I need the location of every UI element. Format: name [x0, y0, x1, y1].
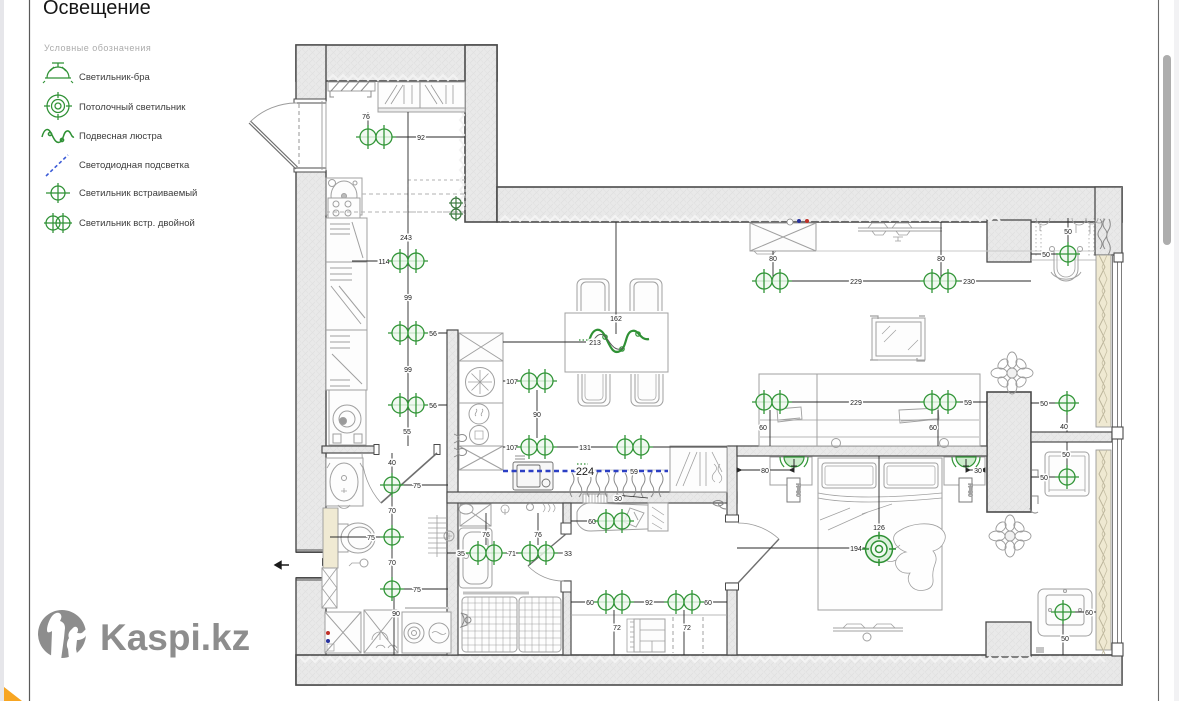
svg-text:60: 60	[1085, 610, 1093, 617]
svg-text:60: 60	[704, 600, 712, 607]
svg-text:Подвесная люстра: Подвесная люстра	[79, 131, 163, 142]
svg-text:60: 60	[586, 600, 594, 607]
svg-text:59: 59	[630, 469, 638, 476]
svg-text:76: 76	[482, 532, 490, 539]
svg-text:162: 162	[610, 316, 622, 323]
svg-text:56: 56	[429, 403, 437, 410]
svg-text:60: 60	[929, 425, 937, 432]
svg-text:Светодиодная подсветка: Светодиодная подсветка	[79, 160, 190, 171]
svg-text:92: 92	[417, 135, 425, 142]
svg-text:194: 194	[850, 546, 862, 553]
svg-text:90: 90	[533, 412, 541, 419]
svg-text:75: 75	[413, 483, 421, 490]
svg-text:230: 230	[963, 279, 975, 286]
svg-text:Условные обозначения: Условные обозначения	[44, 43, 151, 53]
svg-text:243: 243	[400, 235, 412, 242]
svg-text:70: 70	[388, 560, 396, 567]
svg-text:80: 80	[761, 468, 769, 475]
svg-text:92: 92	[645, 600, 653, 607]
svg-text:126: 126	[873, 525, 885, 532]
svg-text:56: 56	[429, 331, 437, 338]
svg-text:60: 60	[759, 425, 767, 432]
svg-text:72: 72	[683, 625, 691, 632]
svg-text:50: 50	[1040, 475, 1048, 482]
svg-text:55: 55	[403, 429, 411, 436]
svg-text:99: 99	[404, 295, 412, 302]
svg-text:114: 114	[378, 259, 389, 266]
svg-text:80: 80	[769, 256, 777, 263]
svg-text:76: 76	[362, 114, 370, 121]
svg-text:H=90: H=90	[967, 483, 973, 496]
svg-text:50: 50	[1061, 636, 1069, 643]
svg-text:80: 80	[937, 256, 945, 263]
svg-text:40: 40	[1060, 424, 1068, 431]
svg-text:229: 229	[850, 400, 862, 407]
svg-text:107: 107	[506, 445, 518, 452]
svg-text:35: 35	[457, 551, 465, 558]
svg-text:71: 71	[508, 551, 516, 558]
svg-text:224: 224	[576, 466, 594, 478]
svg-text:75: 75	[367, 535, 375, 542]
svg-text:75: 75	[413, 587, 421, 594]
svg-text:50: 50	[1040, 401, 1048, 408]
svg-text:Потолочный светильник: Потолочный светильник	[79, 102, 186, 113]
svg-text:Светильник-бра: Светильник-бра	[79, 72, 151, 83]
svg-text:50: 50	[1062, 452, 1070, 459]
svg-text:30: 30	[614, 496, 622, 503]
svg-text:107: 107	[506, 379, 518, 386]
svg-text:Kaspi.kz: Kaspi.kz	[100, 617, 250, 658]
svg-text:50: 50	[1064, 229, 1072, 236]
svg-text:99: 99	[404, 367, 412, 374]
svg-text:50: 50	[1042, 252, 1050, 259]
svg-text:229: 229	[850, 279, 862, 286]
svg-text:70: 70	[388, 508, 396, 515]
svg-text:Освещение: Освещение	[43, 0, 151, 19]
svg-text:59: 59	[964, 400, 972, 407]
svg-text:213: 213	[589, 340, 601, 347]
svg-text:Светильник встраиваемый: Светильник встраиваемый	[79, 188, 197, 199]
svg-text:33: 33	[564, 551, 572, 558]
svg-text:30: 30	[974, 468, 982, 475]
svg-text:H=90: H=90	[795, 483, 801, 496]
svg-text:90: 90	[392, 611, 400, 618]
svg-text:60: 60	[588, 519, 596, 526]
svg-text:40: 40	[388, 460, 396, 467]
svg-text:72: 72	[613, 625, 621, 632]
svg-text:76: 76	[534, 532, 542, 539]
svg-text:131: 131	[579, 445, 591, 452]
svg-text:Светильник встр. двойной: Светильник встр. двойной	[79, 218, 195, 229]
